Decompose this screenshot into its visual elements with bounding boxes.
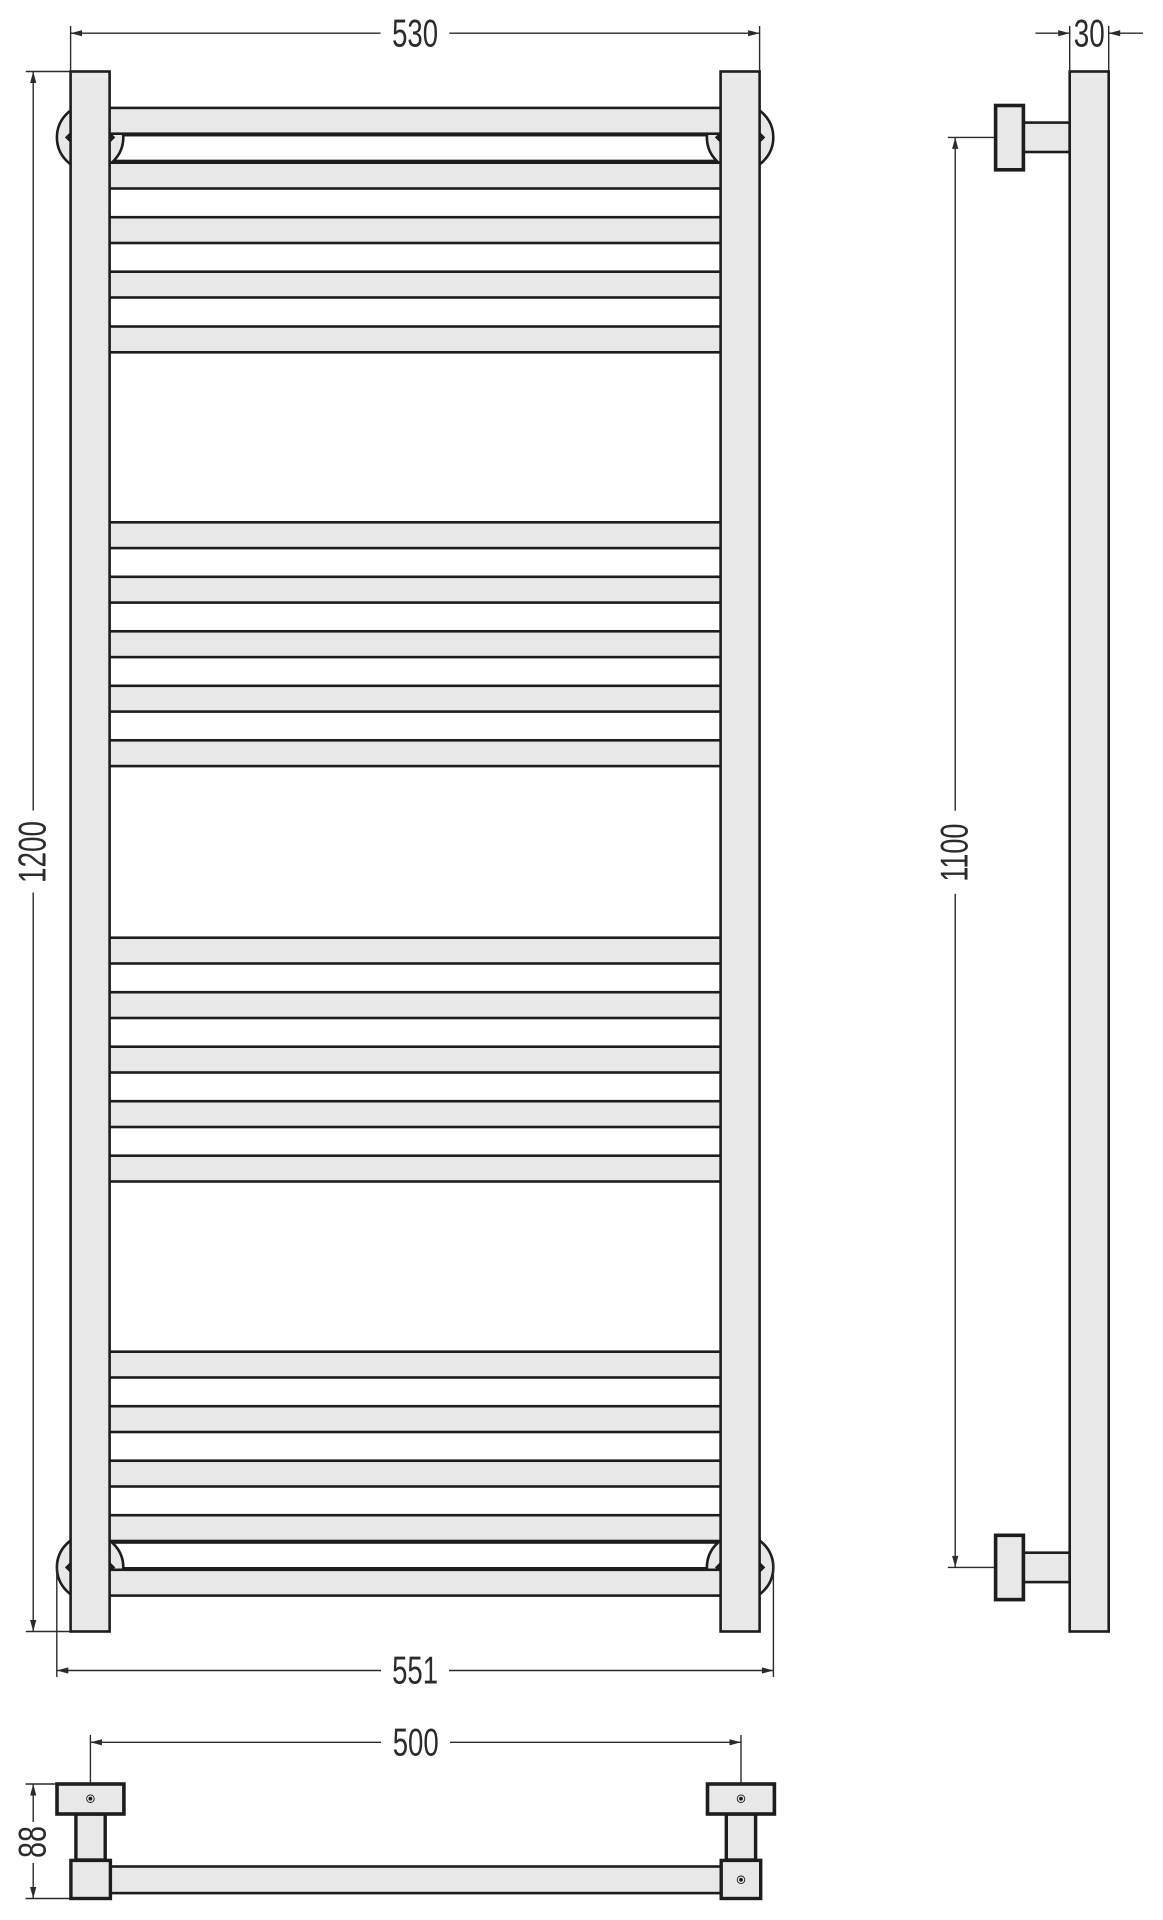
svg-text:88: 88 (12, 1826, 55, 1858)
svg-text:30: 30 (1074, 12, 1105, 55)
svg-text:551: 551 (392, 1650, 438, 1693)
svg-text:500: 500 (393, 1721, 439, 1764)
svg-text:1200: 1200 (12, 821, 55, 883)
svg-text:1100: 1100 (934, 824, 977, 882)
svg-text:530: 530 (392, 12, 438, 55)
